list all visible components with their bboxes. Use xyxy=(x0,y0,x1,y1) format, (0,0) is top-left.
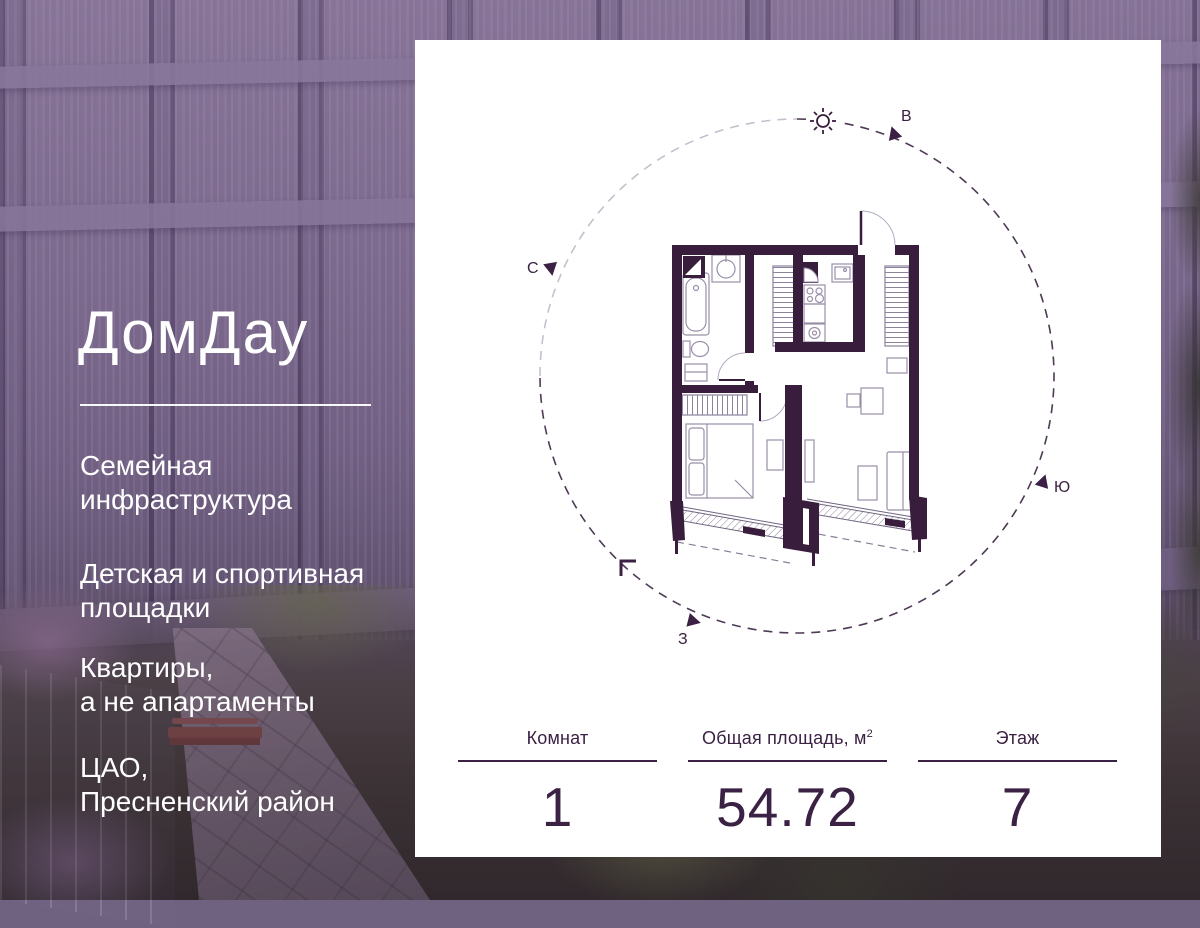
sun-icon xyxy=(807,105,839,137)
compass-east-label: В xyxy=(901,108,912,125)
divider-line xyxy=(80,404,371,406)
bedroom-wardrobe xyxy=(682,395,747,415)
real-estate-banner: { "brand": { "logo": "ДомДау" }, "left_p… xyxy=(0,0,1200,900)
feature-district: ЦАО, Пресненский район xyxy=(80,751,335,819)
feature-apartments: Квартиры, а не апартаменты xyxy=(80,651,315,719)
compass-west-label: З xyxy=(678,631,688,648)
feature-family-infrastructure: Семейная инфраструктура xyxy=(80,449,292,517)
compass-south-arrow xyxy=(1035,472,1052,489)
entry-wardrobe xyxy=(885,266,909,346)
compass-east-arrow xyxy=(885,124,902,141)
brand-logo: ДомДау xyxy=(78,298,309,367)
apartment-card: С В Ю З xyxy=(415,40,1161,857)
stat-rooms-label: Комнат xyxy=(458,728,657,762)
stat-rooms-value: 1 xyxy=(458,775,657,839)
stat-area: Общая площадь, м2 54.72 xyxy=(688,728,887,839)
stat-rooms: Комнат 1 xyxy=(458,728,657,839)
feature-playgrounds: Детская и спортивная площадки xyxy=(80,557,364,625)
stat-floor: Этаж 7 xyxy=(918,728,1117,839)
compass-south-label: Ю xyxy=(1054,479,1070,496)
stat-area-label: Общая площадь, м2 xyxy=(688,728,887,762)
compass-north-label: С xyxy=(527,260,539,277)
apartment-stats: Комнат 1 Общая площадь, м2 54.72 Этаж 7 xyxy=(458,728,1117,839)
compass-west-arrow xyxy=(686,613,702,630)
stat-floor-label: Этаж xyxy=(918,728,1117,762)
stat-floor-value: 7 xyxy=(918,775,1117,839)
stat-area-value: 54.72 xyxy=(688,775,887,839)
compass-north-arrow xyxy=(543,262,559,277)
